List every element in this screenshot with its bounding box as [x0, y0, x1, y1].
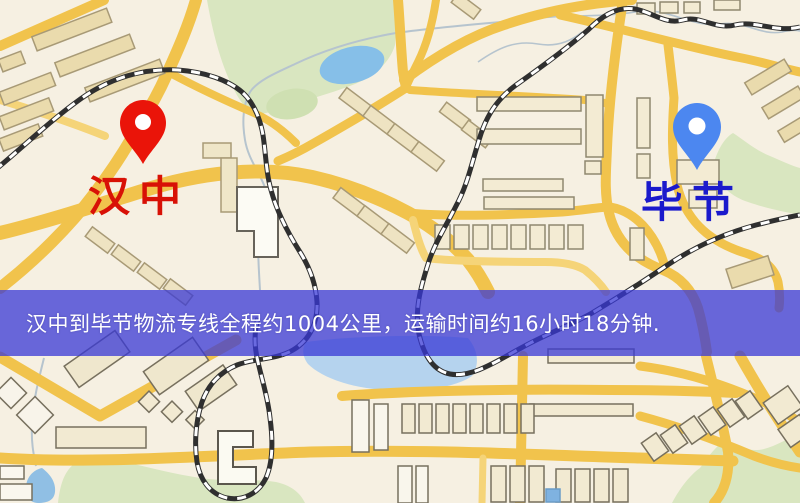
origin-place-label: 汉中: [88, 176, 190, 218]
destination-pin-hole: [689, 118, 706, 135]
road-bottom-vertical-3: [482, 458, 483, 503]
road-junction-ne: [404, 0, 632, 80]
origin-pin-hole: [135, 114, 151, 130]
road-mid-bottom-horizontal: [342, 390, 736, 396]
route-info-text: 汉中到毕节物流专线全程约1004公里，运输时间约16小时18分钟.: [26, 308, 660, 338]
destination-place-label: 毕节: [641, 182, 743, 224]
route-info-banner: 汉中到毕节物流专线全程约1004公里，运输时间约16小时18分钟.: [0, 290, 800, 356]
base-map-tiles: [0, 0, 800, 503]
map-canvas[interactable]: 汉中 毕节 汉中到毕节物流专线全程约1004公里，运输时间约16小时18分钟.: [0, 0, 800, 503]
